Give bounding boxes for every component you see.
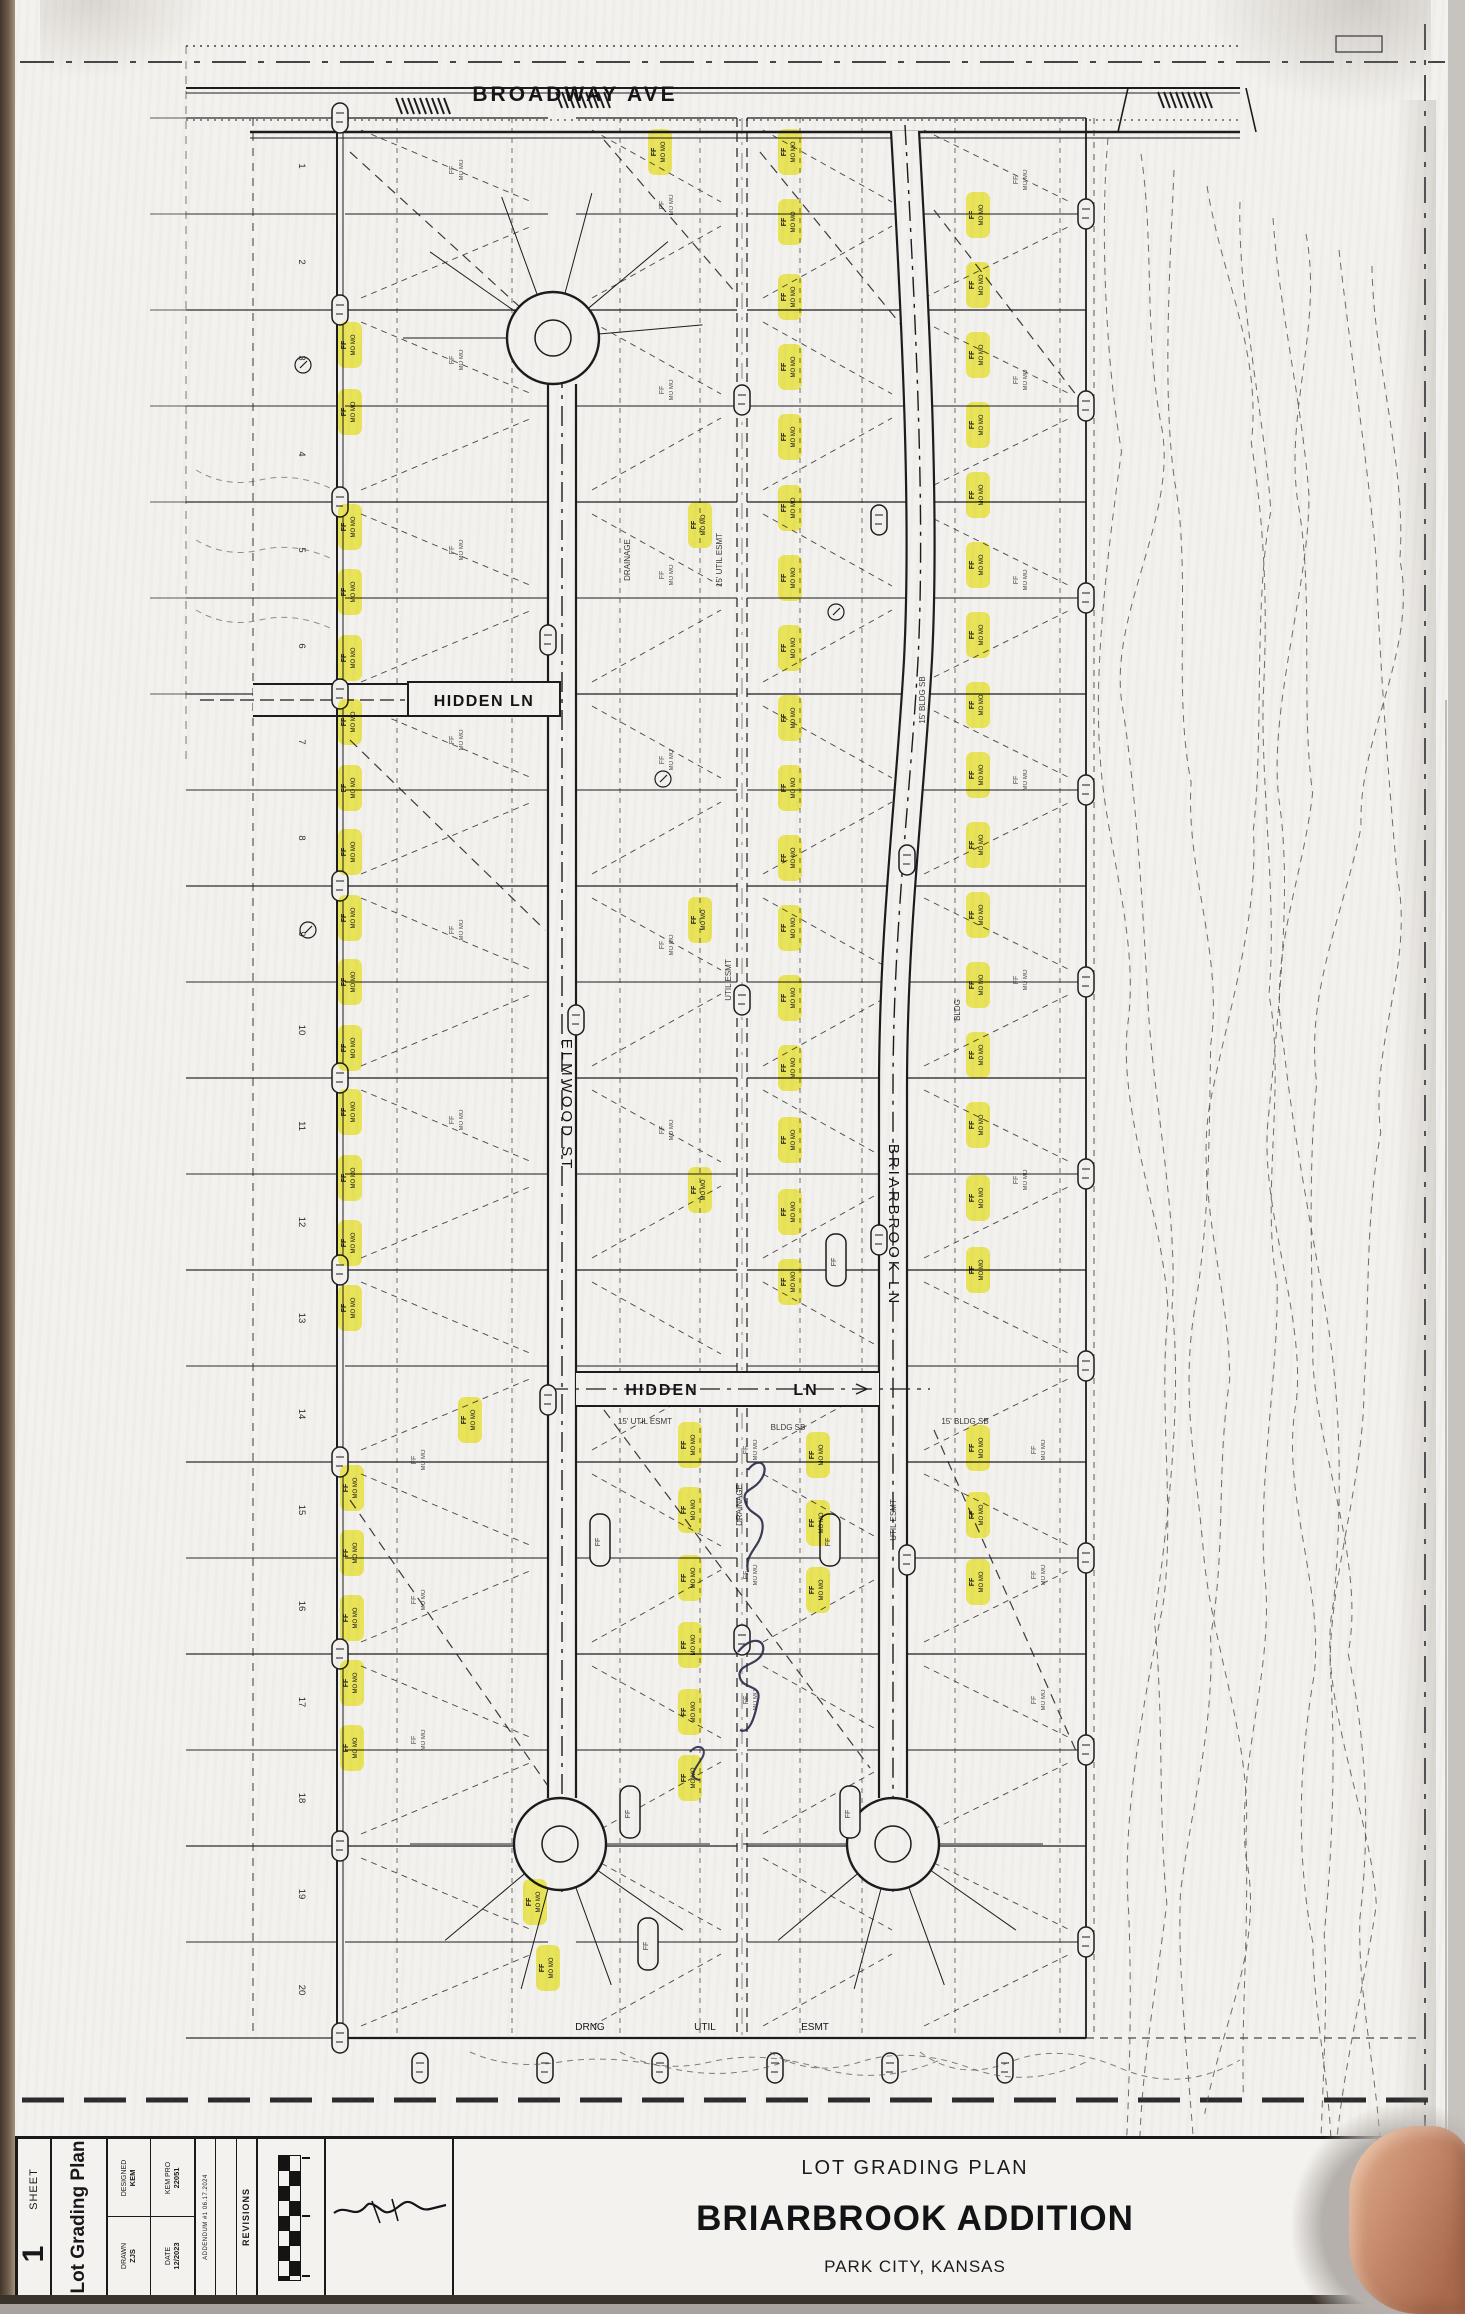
sheet-panel: SHEET 1 <box>18 2139 52 2295</box>
svg-text:FF: FF <box>449 546 456 555</box>
svg-text:ELMWOOD ST: ELMWOOD ST <box>558 1039 575 1172</box>
svg-text:MO MO: MO MO <box>979 974 985 995</box>
svg-text:FF: FF <box>691 1185 698 1194</box>
svg-text:FF: FF <box>643 1942 650 1951</box>
svg-text:HIDDEN: HIDDEN <box>625 1382 698 1399</box>
svg-text:FF: FF <box>743 1571 750 1580</box>
svg-text:MO MO: MO MO <box>351 1167 357 1188</box>
svg-text:FF: FF <box>341 653 348 662</box>
svg-text:FF: FF <box>681 1573 688 1582</box>
svg-text:20: 20 <box>296 1985 307 1996</box>
svg-text:16: 16 <box>296 1601 307 1612</box>
svg-text:MO MO: MO MO <box>979 1259 985 1280</box>
svg-text:FF: FF <box>781 573 788 582</box>
svg-text:FF: FF <box>781 923 788 932</box>
svg-text:MO MO: MO MO <box>1023 569 1029 590</box>
svg-text:FF: FF <box>969 490 976 499</box>
project-number-cell: KEM PRO22051 <box>151 2139 194 2217</box>
svg-text:MO MO: MO MO <box>351 581 357 602</box>
svg-text:6: 6 <box>296 643 307 648</box>
svg-text:MO MO: MO MO <box>691 1434 697 1455</box>
svg-text:FF: FF <box>1031 1571 1038 1580</box>
svg-text:FF: FF <box>659 1126 666 1135</box>
svg-text:FF: FF <box>781 1277 788 1286</box>
svg-text:MO MO: MO MO <box>691 1567 697 1588</box>
svg-text:MO MO: MO MO <box>351 711 357 732</box>
drawn-value: ZJS <box>129 2243 137 2269</box>
svg-text:MO MO: MO MO <box>691 1499 697 1520</box>
svg-text:MO MO: MO MO <box>1041 1689 1047 1710</box>
svg-text:MO MO: MO MO <box>353 1477 359 1498</box>
scale-tick <box>302 2215 310 2217</box>
svg-text:1: 1 <box>296 163 307 168</box>
svg-text:FF: FF <box>341 1238 348 1247</box>
addendum-note: ADDENDUM #1 06.17.2024 <box>203 2174 209 2260</box>
svg-text:MO MO: MO MO <box>979 414 985 435</box>
svg-text:FF: FF <box>809 1585 816 1594</box>
svg-text:FF: FF <box>659 386 666 395</box>
svg-text:MO MO: MO MO <box>353 1672 359 1693</box>
svg-text:MO MO: MO MO <box>1023 969 1029 990</box>
svg-text:MO MO: MO MO <box>979 694 985 715</box>
svg-text:MO MO: MO MO <box>791 777 797 798</box>
svg-text:MO MO: MO MO <box>351 777 357 798</box>
svg-text:MO MO: MO MO <box>353 1607 359 1628</box>
svg-text:FF: FF <box>969 1577 976 1586</box>
svg-text:MO MO: MO MO <box>691 1701 697 1722</box>
svg-text:15' BLDG SB: 15' BLDG SB <box>918 676 927 723</box>
svg-text:FF: FF <box>449 1116 456 1125</box>
svg-text:MO MO: MO MO <box>1023 369 1029 390</box>
svg-text:MO MO: MO MO <box>1023 1169 1029 1190</box>
svg-text:15' BLDG SB: 15' BLDG SB <box>941 1417 988 1426</box>
scale-bar-panel <box>258 2139 326 2295</box>
svg-text:DRAINAGE: DRAINAGE <box>623 539 632 581</box>
addendum-cell: ADDENDUM #1 06.17.2024 <box>196 2139 216 2295</box>
sheet-number: 1 <box>17 2246 51 2263</box>
svg-text:HIDDEN LN: HIDDEN LN <box>434 693 535 710</box>
svg-text:MO MO: MO MO <box>471 1409 477 1430</box>
drawing-name: Lot Grading Plan <box>68 2140 90 2293</box>
svg-text:FF: FF <box>659 756 666 765</box>
drawing-name-panel: Lot Grading Plan <box>52 2139 108 2295</box>
svg-text:MO MO: MO MO <box>979 274 985 295</box>
site-plan-drawing: BROADWAY AVE1234567891011121314151617181… <box>0 0 1448 2296</box>
lot-labels: FFMO MOFFMO MOFFMO MOFFMO MOFFMO MOFFMO … <box>341 141 1047 1978</box>
svg-text:MO MO: MO MO <box>979 204 985 225</box>
svg-text:MO MO: MO MO <box>351 1232 357 1253</box>
svg-text:FF: FF <box>1013 576 1020 585</box>
svg-text:MO MO: MO MO <box>459 919 465 940</box>
svg-text:FF: FF <box>809 1450 816 1459</box>
svg-text:4: 4 <box>296 451 307 456</box>
svg-text:FF: FF <box>845 1810 852 1819</box>
svg-text:FF: FF <box>411 1736 418 1745</box>
svg-text:FF: FF <box>681 1773 688 1782</box>
scan-edge-left <box>0 0 15 2304</box>
svg-text:MO MO: MO MO <box>819 1579 825 1600</box>
revisions-label: REVISIONS <box>241 2188 251 2246</box>
svg-text:18: 18 <box>296 1793 307 1804</box>
svg-text:17: 17 <box>296 1697 307 1708</box>
svg-text:FF: FF <box>969 980 976 989</box>
svg-text:MO MO: MO MO <box>979 1044 985 1065</box>
project-meta-panel: DESIGNEDKEM KEM PRO22051 DRAWNZJS DATE12… <box>108 2139 196 2295</box>
svg-text:FF: FF <box>1013 1176 1020 1185</box>
svg-text:FF: FF <box>781 147 788 156</box>
svg-text:MO MO: MO MO <box>791 847 797 868</box>
svg-text:FF: FF <box>625 1810 632 1819</box>
svg-text:MO MO: MO MO <box>753 1564 759 1585</box>
svg-text:FF: FF <box>1013 376 1020 385</box>
svg-text:FF: FF <box>831 1258 838 1267</box>
svg-text:FF: FF <box>969 1265 976 1274</box>
svg-text:FF: FF <box>969 1120 976 1129</box>
svg-text:MO MO: MO MO <box>536 1891 542 1912</box>
svg-text:MO MO: MO MO <box>791 917 797 938</box>
svg-text:FF: FF <box>343 1548 350 1557</box>
svg-text:MO MO: MO MO <box>421 1729 427 1750</box>
svg-text:FF: FF <box>526 1897 533 1906</box>
svg-text:MO MO: MO MO <box>549 1957 555 1978</box>
svg-text:MO MO: MO MO <box>459 1109 465 1130</box>
signature <box>326 2139 452 2291</box>
svg-text:FF: FF <box>341 587 348 596</box>
svg-text:MO MO: MO MO <box>979 834 985 855</box>
svg-text:MO MO: MO MO <box>819 1444 825 1465</box>
paper-sheet: BROADWAY AVE1234567891011121314151617181… <box>0 0 1448 2296</box>
svg-text:FF: FF <box>341 783 348 792</box>
svg-text:FF: FF <box>1013 776 1020 785</box>
streets: HIDDEN LNHIDDENLNELMWOOD STBRIARBROOK LN <box>200 125 1043 1989</box>
scale-bar-offset <box>289 2155 301 2281</box>
svg-text:MO MO: MO MO <box>791 426 797 447</box>
finger-holding-paper <box>1349 2126 1465 2314</box>
svg-text:FF: FF <box>969 700 976 709</box>
svg-text:FF: FF <box>659 201 666 210</box>
svg-text:MO MO: MO MO <box>351 647 357 668</box>
svg-text:FF: FF <box>343 1678 350 1687</box>
svg-text:FF: FF <box>341 717 348 726</box>
svg-text:FF: FF <box>1031 1446 1038 1455</box>
svg-text:MO MO: MO MO <box>791 286 797 307</box>
svg-text:MO MO: MO MO <box>669 564 675 585</box>
scan-edge-bottom <box>0 2295 1465 2304</box>
svg-text:MO MO: MO MO <box>1041 1439 1047 1460</box>
svg-text:FF: FF <box>781 217 788 226</box>
svg-text:MO MO: MO MO <box>979 1437 985 1458</box>
svg-text:MO MO: MO MO <box>351 401 357 422</box>
svg-text:FF: FF <box>781 1063 788 1072</box>
svg-text:FF: FF <box>809 1518 816 1527</box>
svg-text:14: 14 <box>296 1409 307 1420</box>
svg-text:MO MO: MO MO <box>791 987 797 1008</box>
svg-text:FF: FF <box>449 356 456 365</box>
svg-text:MO MO: MO MO <box>791 637 797 658</box>
svg-text:DRNG: DRNG <box>575 2022 605 2033</box>
svg-text:FF: FF <box>781 362 788 371</box>
svg-text:MO MO: MO MO <box>791 567 797 588</box>
svg-text:LN: LN <box>793 1382 818 1399</box>
scanned-lot-grading-plan: { "streets": { "broadway": "BROADWAY AVE… <box>0 0 1465 2304</box>
svg-text:MO MO: MO MO <box>351 334 357 355</box>
svg-text:MO MO: MO MO <box>351 841 357 862</box>
project-number: 22051 <box>173 2161 181 2193</box>
svg-text:MO MO: MO MO <box>421 1449 427 1470</box>
svg-text:MO MO: MO MO <box>979 1571 985 1592</box>
svg-text:MO MO: MO MO <box>791 356 797 377</box>
svg-text:FF: FF <box>781 432 788 441</box>
svg-text:FF: FF <box>969 350 976 359</box>
svg-text:FF: FF <box>781 713 788 722</box>
svg-text:MO MO: MO MO <box>669 749 675 770</box>
designed-cell: DESIGNEDKEM <box>108 2139 151 2217</box>
svg-text:MO MO: MO MO <box>979 764 985 785</box>
svg-text:FF: FF <box>681 1440 688 1449</box>
svg-text:FF: FF <box>343 1483 350 1492</box>
svg-text:MO MO: MO MO <box>979 484 985 505</box>
scale-tick <box>302 2275 310 2277</box>
svg-text:FF: FF <box>341 913 348 922</box>
svg-text:7: 7 <box>296 739 307 744</box>
svg-text:FF: FF <box>969 1510 976 1519</box>
svg-text:MO MO: MO MO <box>351 971 357 992</box>
svg-text:FF: FF <box>743 1696 750 1705</box>
svg-text:MO MO: MO MO <box>979 624 985 645</box>
svg-text:FF: FF <box>691 915 698 924</box>
svg-text:13: 13 <box>296 1313 307 1324</box>
svg-text:MO MO: MO MO <box>791 1057 797 1078</box>
svg-text:FF: FF <box>411 1456 418 1465</box>
svg-text:MO MO: MO MO <box>701 1179 707 1200</box>
svg-text:FF: FF <box>411 1596 418 1605</box>
svg-text:FF: FF <box>781 993 788 1002</box>
svg-text:FF: FF <box>969 1050 976 1059</box>
svg-text:MO MO: MO MO <box>669 379 675 400</box>
svg-text:MO MO: MO MO <box>459 539 465 560</box>
svg-text:FF: FF <box>781 1207 788 1216</box>
svg-text:FF: FF <box>969 1193 976 1202</box>
svg-text:MO MO: MO MO <box>1023 169 1029 190</box>
svg-text:8: 8 <box>296 835 307 840</box>
svg-text:FF: FF <box>343 1613 350 1622</box>
svg-text:MO MO: MO MO <box>1023 769 1029 790</box>
svg-text:MO MO: MO MO <box>979 904 985 925</box>
svg-text:FF: FF <box>743 1446 750 1455</box>
svg-text:19: 19 <box>296 1889 307 1900</box>
svg-text:FF: FF <box>1013 976 1020 985</box>
svg-text:11: 11 <box>296 1121 307 1131</box>
svg-text:FF: FF <box>341 977 348 986</box>
svg-text:DRAINAGE: DRAINAGE <box>735 1484 744 1526</box>
project-location: PARK CITY, KANSAS <box>824 2257 1006 2277</box>
svg-text:FF: FF <box>691 520 698 529</box>
svg-text:FF: FF <box>781 1135 788 1144</box>
svg-text:12: 12 <box>296 1217 307 1228</box>
svg-text:10: 10 <box>296 1025 307 1036</box>
svg-text:MO MO: MO MO <box>459 159 465 180</box>
sheet-label: SHEET <box>28 2168 40 2210</box>
svg-text:MO MO: MO MO <box>351 907 357 928</box>
svg-text:MO MO: MO MO <box>421 1589 427 1610</box>
svg-text:15: 15 <box>296 1505 307 1516</box>
date-value: 12/2023 <box>173 2242 181 2269</box>
scale-tick <box>302 2157 310 2159</box>
svg-text:MO MO: MO MO <box>979 554 985 575</box>
svg-text:FF: FF <box>969 280 976 289</box>
revisions-panel: ADDENDUM #1 06.17.2024 REVISIONS <box>196 2139 258 2295</box>
svg-text:MO MO: MO MO <box>669 1119 675 1140</box>
svg-text:FF: FF <box>595 1538 602 1547</box>
svg-text:FF: FF <box>341 847 348 856</box>
svg-text:MO MO: MO MO <box>691 1634 697 1655</box>
svg-text:MO MO: MO MO <box>351 1037 357 1058</box>
svg-text:MO MO: MO MO <box>753 1439 759 1460</box>
svg-text:FF: FF <box>969 910 976 919</box>
svg-text:FF: FF <box>341 1043 348 1052</box>
svg-text:MO MO: MO MO <box>791 1201 797 1222</box>
svg-text:FF: FF <box>781 292 788 301</box>
svg-text:MO MO: MO MO <box>353 1737 359 1758</box>
svg-text:MO MO: MO MO <box>661 141 667 162</box>
svg-text:MO MO: MO MO <box>351 1101 357 1122</box>
svg-text:FF: FF <box>969 630 976 639</box>
title-panel: LOT GRADING PLAN BRIARBROOK ADDITION PAR… <box>454 2139 1376 2295</box>
svg-text:FF: FF <box>969 1443 976 1452</box>
svg-text:MO MO: MO MO <box>819 1512 825 1533</box>
svg-text:MO MO: MO MO <box>791 141 797 162</box>
svg-text:ESMT: ESMT <box>801 2022 829 2033</box>
svg-text:2: 2 <box>296 259 307 264</box>
svg-text:MO MO: MO MO <box>979 1187 985 1208</box>
svg-text:FF: FF <box>449 736 456 745</box>
svg-text:MO MO: MO MO <box>701 909 707 930</box>
svg-text:FF: FF <box>781 783 788 792</box>
project-title: BRIARBROOK ADDITION <box>696 2199 1134 2239</box>
svg-text:FF: FF <box>781 503 788 512</box>
svg-text:FF: FF <box>1013 176 1020 185</box>
svg-text:FF: FF <box>681 1640 688 1649</box>
svg-text:MO MO: MO MO <box>1041 1564 1047 1585</box>
svg-text:FF: FF <box>449 926 456 935</box>
svg-text:15' UTIL ESMT: 15' UTIL ESMT <box>715 533 724 587</box>
svg-text:MO MO: MO MO <box>791 1129 797 1150</box>
svg-text:MO MO: MO MO <box>979 344 985 365</box>
svg-text:MO MO: MO MO <box>791 1271 797 1292</box>
svg-text:MO MO: MO MO <box>979 1504 985 1525</box>
svg-text:FF: FF <box>341 522 348 531</box>
title-block: SHEET 1 Lot Grading Plan DESIGNEDKEM KEM… <box>15 2136 1449 2298</box>
broadway-avenue: BROADWAY AVE <box>20 36 1445 138</box>
svg-text:FF: FF <box>343 1743 350 1752</box>
svg-text:MO MO: MO MO <box>791 497 797 518</box>
svg-text:FF: FF <box>969 770 976 779</box>
svg-text:MO MO: MO MO <box>979 1114 985 1135</box>
svg-text:FF: FF <box>341 1173 348 1182</box>
svg-text:FF: FF <box>341 1303 348 1312</box>
svg-text:FF: FF <box>539 1963 546 1972</box>
svg-text:MO MO: MO MO <box>701 514 707 535</box>
svg-text:MO MO: MO MO <box>669 934 675 955</box>
signature-panel <box>326 2139 454 2295</box>
svg-text:MO MO: MO MO <box>351 516 357 537</box>
svg-text:BLDG: BLDG <box>953 999 962 1021</box>
svg-text:FF: FF <box>659 571 666 580</box>
scan-edge-right <box>1448 0 1465 2304</box>
date-cell: DATE12/2023 <box>151 2217 194 2295</box>
svg-text:MO MO: MO MO <box>353 1542 359 1563</box>
svg-text:FF: FF <box>681 1505 688 1514</box>
svg-text:MO MO: MO MO <box>459 729 465 750</box>
svg-text:FF: FF <box>341 1107 348 1116</box>
svg-text:MO MO: MO MO <box>791 707 797 728</box>
revision-blank-cell <box>216 2139 236 2295</box>
svg-text:FF: FF <box>659 941 666 950</box>
svg-text:FF: FF <box>461 1415 468 1424</box>
svg-text:MO MO: MO MO <box>351 1297 357 1318</box>
svg-text:FF: FF <box>969 840 976 849</box>
svg-text:UTIL: UTIL <box>694 2022 716 2033</box>
svg-text:FF: FF <box>681 1707 688 1716</box>
svg-text:FF: FF <box>449 166 456 175</box>
svg-text:FF: FF <box>781 643 788 652</box>
svg-text:MO MO: MO MO <box>669 194 675 215</box>
svg-text:FF: FF <box>969 560 976 569</box>
plan-type: LOT GRADING PLAN <box>801 2157 1028 2180</box>
west-lots: 1234567891011121314151617181920 <box>150 46 337 2038</box>
svg-text:FF: FF <box>1031 1696 1038 1705</box>
svg-text:FF: FF <box>341 407 348 416</box>
revisions-cell: REVISIONS <box>237 2139 256 2295</box>
svg-text:BLDG SB: BLDG SB <box>771 1423 806 1432</box>
svg-text:FF: FF <box>781 853 788 862</box>
plat-boundary: DRNGUTILESMT <box>22 24 1446 2130</box>
svg-text:BROADWAY AVE: BROADWAY AVE <box>472 83 677 106</box>
svg-text:FF: FF <box>651 147 658 156</box>
svg-text:FF: FF <box>341 340 348 349</box>
svg-text:UTIL ESMT: UTIL ESMT <box>889 1499 898 1541</box>
svg-text:MO MO: MO MO <box>459 349 465 370</box>
drawn-cell: DRAWNZJS <box>108 2217 151 2295</box>
svg-text:15' UTIL ESMT: 15' UTIL ESMT <box>618 1417 672 1426</box>
designed-value: KEM <box>129 2159 137 2196</box>
svg-text:BRIARBROOK LN: BRIARBROOK LN <box>885 1144 902 1306</box>
svg-text:UTIL ESMT: UTIL ESMT <box>724 959 733 1001</box>
svg-text:MO MO: MO MO <box>791 211 797 232</box>
svg-text:FF: FF <box>969 210 976 219</box>
svg-text:FF: FF <box>969 420 976 429</box>
